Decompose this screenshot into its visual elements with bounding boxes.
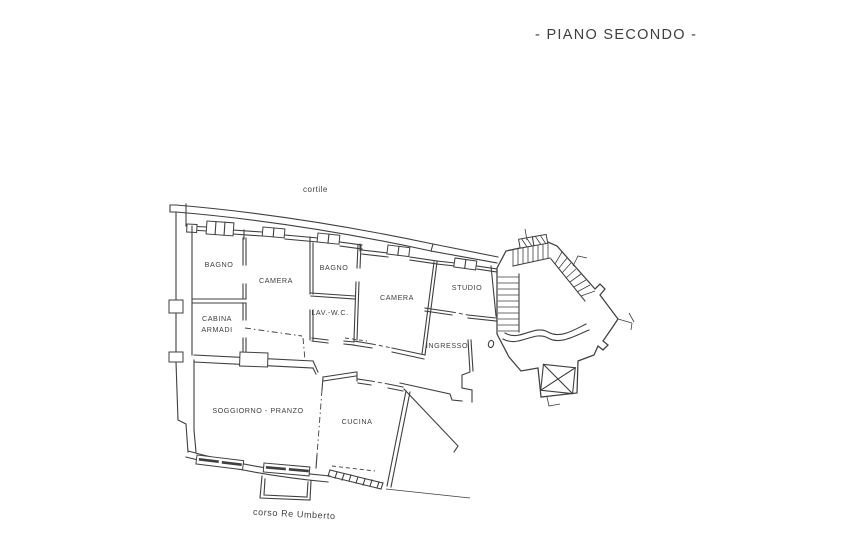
staircase: [497, 229, 634, 397]
window-icon: [196, 455, 244, 470]
pilaster: [169, 352, 183, 362]
room-label-bagno-2: BAGNO: [320, 263, 349, 272]
street-label: corso Re Umberto: [253, 507, 336, 521]
page-title: - PIANO SECONDO -: [535, 27, 697, 43]
room-label-studio: STUDIO: [452, 283, 482, 292]
elevator-south-jag: [547, 397, 560, 406]
room-label-cabina-line2: ARMADI: [201, 325, 232, 334]
elevator-shaft: [541, 364, 576, 393]
wall-pier: [240, 352, 268, 367]
window-icon: [206, 221, 234, 236]
room-label-lav-wc: LAV.-W.C.: [311, 308, 348, 317]
pilaster: [169, 300, 183, 313]
room-label-camera-1: CAMERA: [259, 276, 293, 285]
room-label-cabina-line1: CABINA: [202, 314, 232, 323]
room-label-bagno-1: BAGNO: [205, 260, 234, 269]
room-label-camera-2: CAMERA: [380, 293, 414, 302]
courtyard-label: cortile: [303, 185, 328, 194]
scanned-floor-plan-page: - PIANO SECONDO - cortile corso Re Umber…: [0, 0, 853, 560]
room-label-ingresso: INGRESSO: [426, 341, 468, 350]
west-walls: [169, 212, 196, 452]
door-swing-mark: [488, 340, 495, 348]
south-outer-wall: [186, 451, 470, 500]
room-label-cucina: CUCINA: [342, 417, 373, 426]
room-label-soggiorno: SOGGIORNO - PRANZO: [212, 406, 303, 415]
floor-plan-drawing: - PIANO SECONDO - cortile corso Re Umber…: [0, 0, 853, 560]
